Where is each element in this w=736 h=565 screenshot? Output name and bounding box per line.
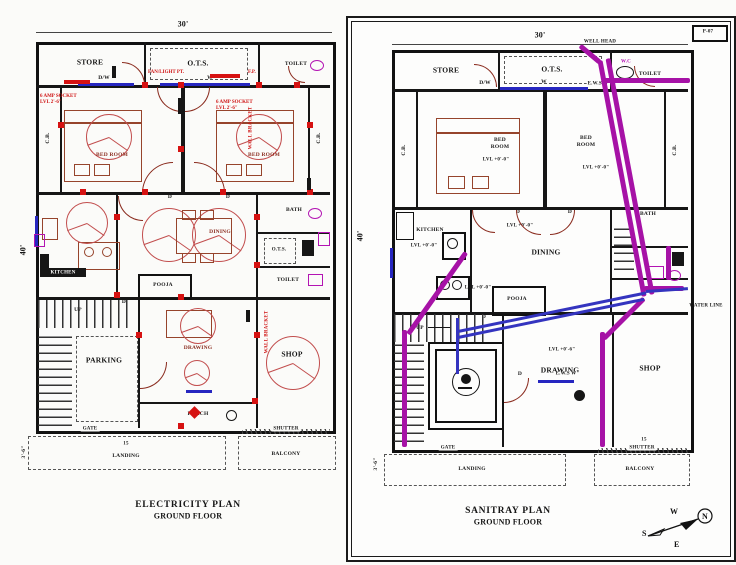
- bed-right-label: BED ROOM: [248, 152, 280, 158]
- kitchen-level: LVL +0'-0": [411, 244, 437, 249]
- drawing-sheet: 30' 40' 3'-6" O.T.S. STORE TOILET D/W: [0, 0, 736, 565]
- geyser-icon: [302, 240, 314, 256]
- stove-icon: [78, 242, 120, 270]
- plan-subtitle: GROUND FLOOR: [154, 512, 222, 521]
- switchboard-icon: [246, 310, 250, 322]
- bath-label: BATH: [286, 207, 302, 213]
- bed-left-label: BED ROOM: [491, 137, 510, 151]
- dim-bottom-label: 3'-6": [373, 458, 379, 471]
- pillow-icon: [226, 164, 242, 176]
- ews-note: E.W.S W: [555, 372, 578, 377]
- bed-right-level: LVL +0'-0": [583, 166, 609, 171]
- wc-icon: [308, 274, 323, 286]
- bed-right-label: BED ROOM: [577, 135, 596, 149]
- landing-label: LANDING: [112, 453, 139, 459]
- window: [160, 83, 250, 86]
- dim-side-label: 40': [356, 231, 365, 242]
- hall-level: LVL +0'-0": [465, 286, 491, 291]
- plan-title: ELECTRICITY PLAN: [135, 500, 241, 510]
- washbasin-icon: [308, 208, 322, 219]
- wall-bracket-note: WALL BRACKET: [265, 311, 270, 354]
- gate-label: GATE: [81, 427, 100, 432]
- window: [186, 390, 212, 393]
- wall-toilet: [258, 42, 260, 85]
- manhole-line: [458, 387, 472, 389]
- ceiling-fan-icon: [184, 360, 210, 386]
- kitchen-label: KITCHEN: [50, 271, 75, 276]
- balcony-label: BALCONY: [272, 451, 301, 457]
- bed-left-level: LVL +0'-0": [483, 158, 509, 163]
- sink-bowl-icon: [447, 238, 458, 249]
- electrical-point: [220, 189, 226, 195]
- water-line-vertical: [456, 318, 459, 374]
- pillow-icon: [74, 164, 90, 176]
- electrical-point: [114, 214, 120, 220]
- electrical-point: [178, 294, 184, 300]
- pillow-icon: [472, 176, 489, 189]
- electrical-point: [178, 423, 184, 429]
- shelf-icon: [396, 212, 414, 240]
- electrical-point: [80, 189, 86, 195]
- washbasin-icon: [310, 60, 324, 71]
- ceiling-fan-icon: [266, 336, 320, 390]
- cb-right-label: C.B.: [316, 132, 322, 143]
- electrical-point: [178, 146, 184, 152]
- electrical-point: [58, 122, 64, 128]
- electricity-plan: 30' 40' 3'-6" O.T.S. STORE TOILET D/W: [20, 10, 342, 558]
- water-line-note: WATER LINE: [689, 304, 722, 309]
- db-box-icon: [40, 254, 49, 272]
- wall-cb-right: [308, 85, 310, 192]
- cb-right-label: C.B.: [672, 144, 678, 155]
- pillow-icon: [246, 164, 262, 176]
- shutter-label: SHUTTER: [271, 427, 300, 432]
- shutter-width: 15: [641, 438, 646, 443]
- stairs: [38, 300, 134, 328]
- bath-pipe: [666, 246, 671, 280]
- pooja-label: POOJA: [153, 282, 173, 288]
- ots-small-label: O.T.S.: [272, 248, 287, 253]
- ceiling-fan-icon: [66, 202, 108, 244]
- wall-kitchen: [470, 207, 472, 312]
- bed-left-label: BED ROOM: [96, 152, 128, 158]
- socket-note: 6 AMP SOCKET LVL 2'-6": [40, 94, 77, 105]
- gate-label: GATE: [439, 446, 458, 451]
- cb-left-label: C.B.: [45, 132, 51, 143]
- chair-icon: [182, 210, 196, 220]
- wall: [256, 266, 330, 268]
- d-tag: D: [518, 371, 522, 377]
- floor-trap-icon: [574, 390, 585, 401]
- cb-left-label: C.B.: [401, 144, 407, 155]
- parking-outline: [76, 336, 138, 422]
- store-label: STORE: [77, 58, 103, 67]
- floor-trap-icon: [226, 410, 237, 421]
- chair-icon: [200, 210, 214, 220]
- wall-bracket-note: WALL BRACKET: [249, 107, 254, 150]
- fitting-icon: [34, 234, 45, 247]
- sanitary-plan: P-07 30' 40' 3'-6" O.T.S. STORE TOILET W…: [346, 16, 736, 562]
- plan-title: SANITRAY PLAN: [465, 506, 551, 516]
- compass-n: N: [702, 512, 708, 521]
- electrical-point: [307, 122, 313, 128]
- electrical-point: [252, 398, 258, 404]
- up-label: UP: [74, 307, 82, 313]
- bath-label: BATH: [640, 211, 656, 217]
- store-label: STORE: [433, 66, 459, 75]
- dim-bottom-label: 3'-6": [21, 446, 27, 459]
- kitchen-label: KITCHEN: [416, 227, 443, 233]
- pooja-label: POOJA: [507, 296, 527, 302]
- wall-bed-mid: [543, 89, 547, 207]
- balcony-label: BALCONY: [626, 466, 655, 472]
- soil-pipe-vertical: [600, 332, 605, 447]
- ceiling-fan-icon: [180, 308, 216, 344]
- stairs: [394, 344, 424, 442]
- electrical-point: [254, 332, 260, 338]
- wall-shop-left: [256, 297, 258, 428]
- compass-e: E: [674, 540, 679, 549]
- dining-table-icon: [176, 218, 232, 254]
- plan-subtitle: GROUND FLOOR: [474, 518, 542, 527]
- soil-pipe: [602, 78, 690, 83]
- dining-label: DINING: [209, 229, 231, 235]
- sheet-number: P-07: [703, 30, 714, 35]
- ots-label: O.T.S.: [187, 59, 208, 68]
- electrical-point: [114, 292, 120, 298]
- burner-icon: [84, 247, 94, 257]
- electrical-point: [136, 332, 142, 338]
- electrical-point: [294, 82, 300, 88]
- dim-side-label: 40': [19, 245, 28, 256]
- toilet-mid-label: TOILET: [277, 277, 299, 283]
- wiring-run: [210, 74, 240, 78]
- waste-pipe-vertical: [402, 330, 407, 447]
- chair-icon: [200, 253, 214, 263]
- dining-label: DINING: [531, 248, 560, 257]
- drawing-level: LVL +0'-6": [549, 348, 575, 353]
- fan-light-note: FAN/LIGHT PT.: [148, 70, 184, 76]
- window: [500, 87, 588, 90]
- north-arrow-compass: N W S E: [640, 502, 716, 550]
- wall-dining: [610, 207, 612, 312]
- bath-fitting-icon: [318, 232, 330, 246]
- drawing-label: DRAWING: [184, 345, 213, 351]
- stairs: [38, 332, 72, 426]
- fp-note: F.P.: [248, 70, 256, 76]
- wall-porch: [138, 402, 258, 404]
- dim-line-top: [392, 44, 688, 45]
- up-arrow: [428, 327, 450, 328]
- switchboard-icon: [112, 66, 116, 78]
- pillow-icon: [94, 164, 110, 176]
- dw-tag: D/W: [98, 75, 110, 81]
- wall-dining: [256, 192, 258, 297]
- geyser-icon: [672, 252, 684, 266]
- wiring-run: [64, 80, 90, 84]
- manhole-cover-icon: [461, 374, 471, 384]
- wall-store: [498, 50, 500, 89]
- dim-line-top: [36, 32, 332, 33]
- switchboard-icon: [307, 178, 311, 190]
- window: [390, 248, 393, 278]
- d-tag: D: [168, 194, 172, 200]
- electrical-point: [178, 82, 184, 88]
- bed-line: [436, 132, 520, 134]
- wall-cb-left: [416, 89, 418, 207]
- switchboard-icon: [178, 98, 182, 114]
- pillow-icon: [448, 176, 465, 189]
- shop-label: SHOP: [639, 364, 660, 373]
- electrical-point: [254, 262, 260, 268]
- d-tag: D: [226, 194, 230, 200]
- wall-cb-right: [664, 89, 666, 207]
- chair-icon: [182, 253, 196, 263]
- compass-s: S: [642, 529, 647, 538]
- electrical-point: [142, 189, 148, 195]
- parking-label: PARKING: [86, 356, 122, 365]
- ots-label: O.T.S.: [541, 65, 562, 74]
- landing-label: LANDING: [458, 466, 485, 472]
- electrical-point: [142, 82, 148, 88]
- up-label: UP: [416, 325, 424, 331]
- landing-width: 15: [123, 442, 128, 447]
- shutter-label: SHUTTER: [627, 446, 656, 451]
- electrical-point: [256, 82, 262, 88]
- wc-note: W.C: [621, 60, 631, 65]
- window: [538, 380, 574, 383]
- w-tag: W: [541, 79, 547, 85]
- electrical-point: [254, 214, 260, 220]
- burner-icon: [102, 247, 112, 257]
- well-head-note: WELL HEAD: [584, 40, 616, 45]
- socket-note: 6 AMP SOCKET LVL 2'-6": [216, 100, 253, 111]
- burner-icon: [452, 280, 462, 290]
- dim-top-label: 30': [535, 31, 546, 40]
- dim-top-label: 30': [178, 20, 189, 29]
- compass-w: W: [670, 507, 678, 516]
